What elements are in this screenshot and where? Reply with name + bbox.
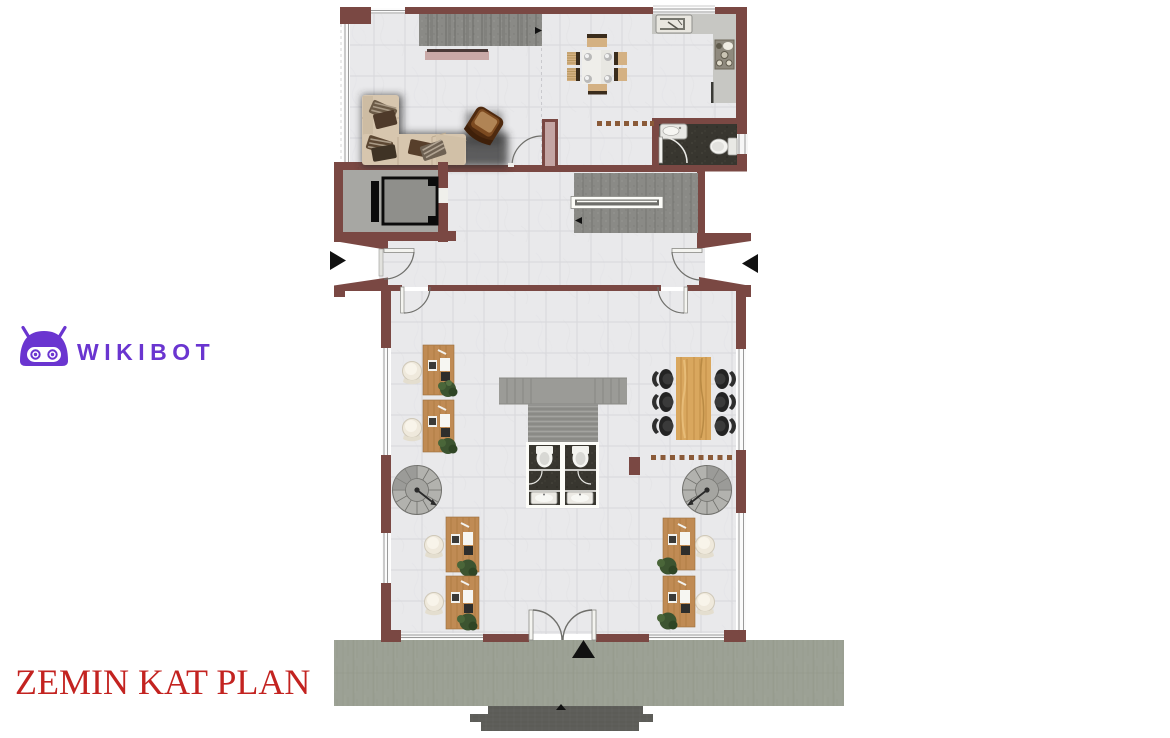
svg-text:WIKIBOT: WIKIBOT bbox=[77, 339, 215, 365]
svg-text:ZEMIN KAT PLAN: ZEMIN KAT PLAN bbox=[15, 662, 310, 702]
